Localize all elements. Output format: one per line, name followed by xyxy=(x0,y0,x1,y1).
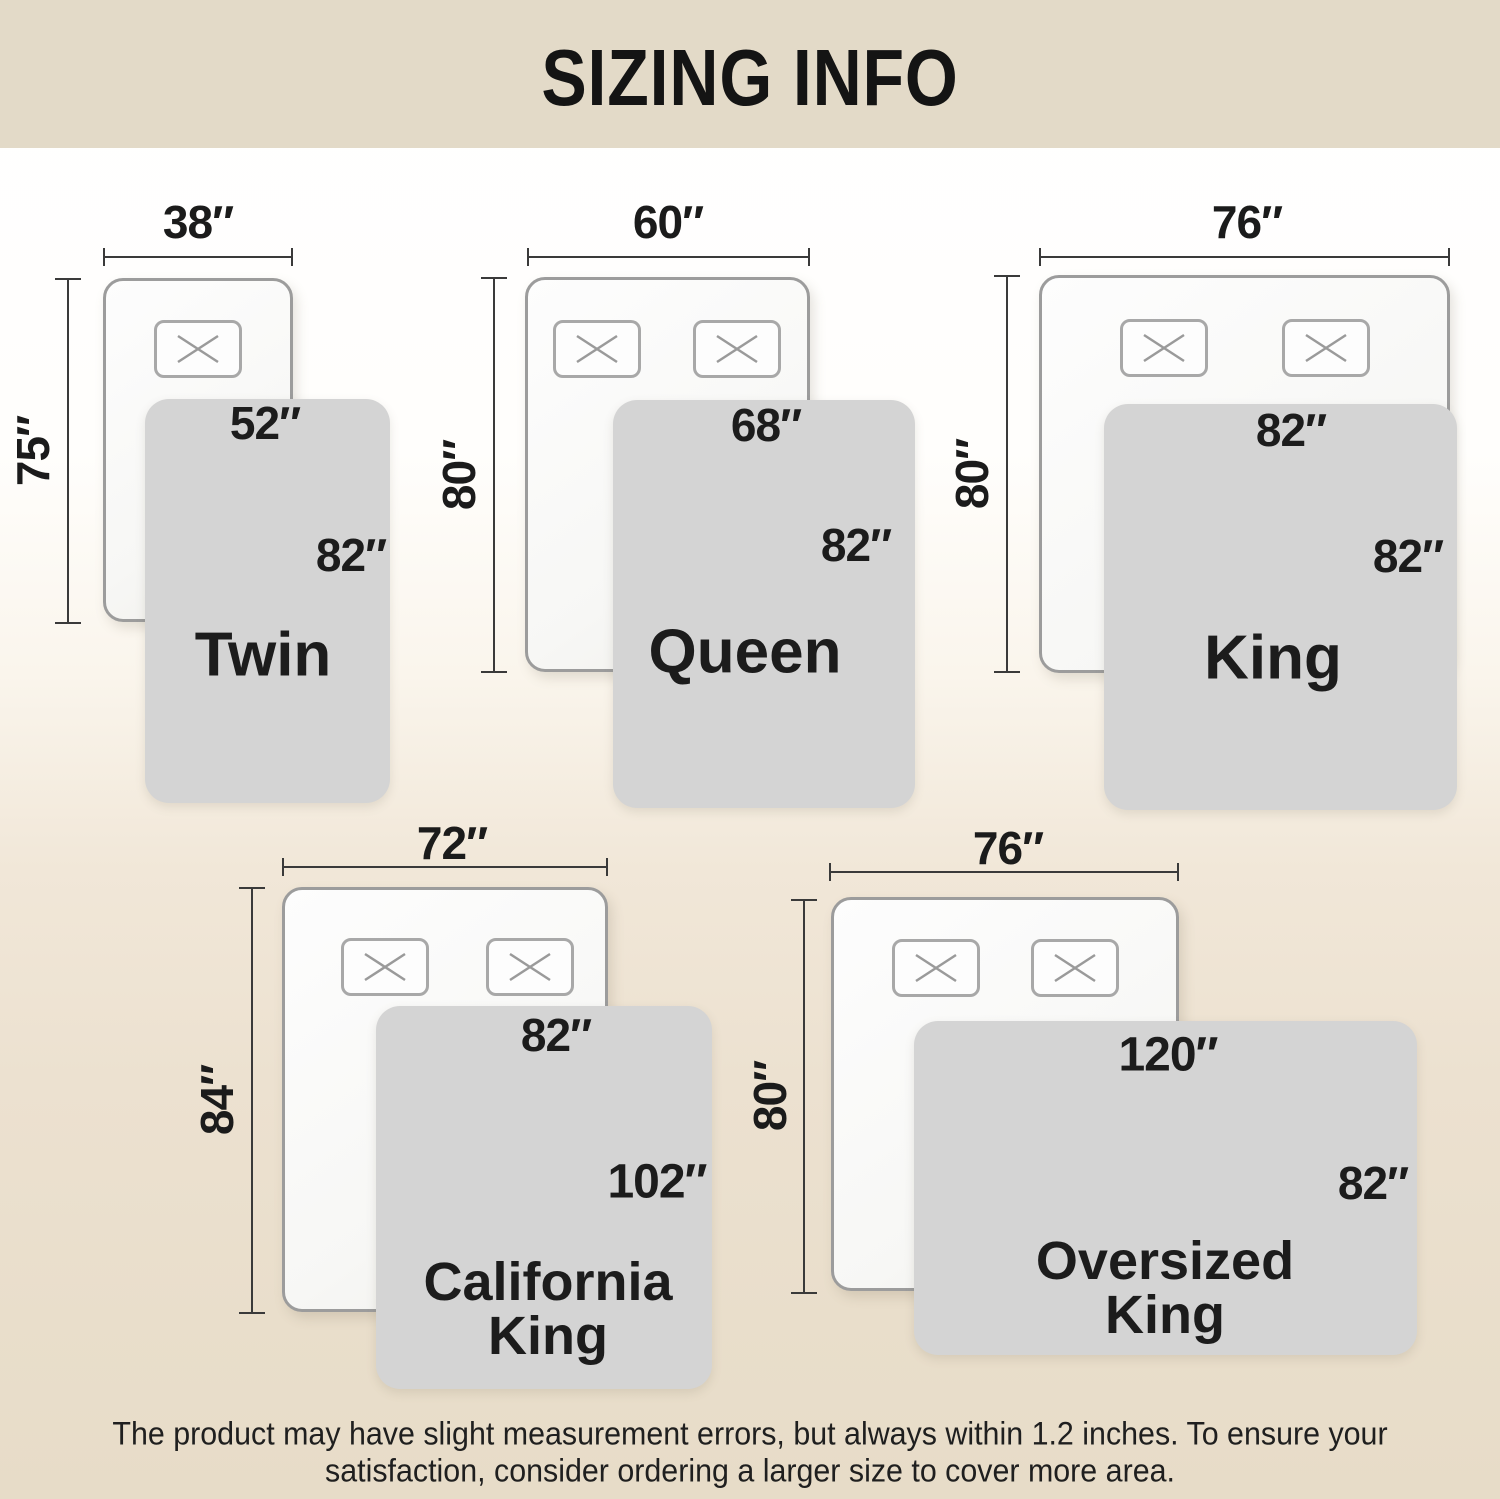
pillow xyxy=(341,938,429,996)
blanket-overlay xyxy=(145,399,390,803)
width-dimension-label: 60″ xyxy=(633,195,703,249)
sizing-infographic: SIZING INFO 38″ 75″ 52″ 82″ Twin 60″ 80″… xyxy=(0,0,1500,1499)
length-dimension-line xyxy=(67,278,69,624)
size-name-label: California King xyxy=(423,1255,672,1363)
pillow xyxy=(1282,319,1370,377)
pillow xyxy=(1120,319,1208,377)
width-dimension-label: 38″ xyxy=(163,195,233,249)
pillow-x-icon xyxy=(501,949,559,985)
width-dimension-line xyxy=(1039,256,1450,258)
length-dimension-label: 84″ xyxy=(190,1065,244,1135)
pillow-x-icon xyxy=(907,950,965,986)
size-name-line-2: King xyxy=(423,1309,672,1363)
size-name-label: Oversized King xyxy=(1036,1234,1294,1342)
length-dimension-label: 80″ xyxy=(945,439,999,509)
length-dimension-label: 75″ xyxy=(6,416,60,486)
disclaimer-line-1: The product may have slight measurement … xyxy=(112,1416,1387,1453)
length-dimension-label: 80″ xyxy=(743,1061,797,1131)
width-dimension-line xyxy=(103,256,293,258)
pillow-x-icon xyxy=(1046,950,1104,986)
blanket-width-label: 82″ xyxy=(521,1008,591,1062)
blanket-length-label: 82″ xyxy=(1373,529,1443,583)
blanket-width-label: 68″ xyxy=(731,398,801,452)
pillow-x-icon xyxy=(169,331,227,367)
size-name-line-1: Oversized xyxy=(1036,1234,1294,1288)
blanket-length-label: 82″ xyxy=(316,528,386,582)
width-dimension-label: 72″ xyxy=(417,816,487,870)
blanket-length-label: 102″ xyxy=(607,1155,706,1210)
size-name-label: Queen xyxy=(649,617,842,688)
pillow xyxy=(553,320,641,378)
width-dimension-line xyxy=(527,256,810,258)
pillow xyxy=(693,320,781,378)
blanket-overlay xyxy=(613,400,915,808)
pillow xyxy=(1031,939,1119,997)
size-name-line-2: King xyxy=(1036,1288,1294,1342)
pillow xyxy=(154,320,242,378)
length-dimension-label: 80″ xyxy=(432,440,486,510)
blanket-length-label: 82″ xyxy=(821,518,891,572)
size-name-label: King xyxy=(1204,623,1342,694)
pillow-x-icon xyxy=(568,331,626,367)
width-dimension-label: 76″ xyxy=(973,821,1043,875)
pillow xyxy=(892,939,980,997)
pillow-x-icon xyxy=(708,331,766,367)
blanket-width-label: 120″ xyxy=(1118,1028,1217,1083)
blanket-overlay xyxy=(1104,404,1457,810)
length-dimension-line xyxy=(1006,275,1008,673)
pillow xyxy=(486,938,574,996)
length-dimension-line xyxy=(493,277,495,673)
pillow-x-icon xyxy=(1297,330,1355,366)
length-dimension-line xyxy=(251,887,253,1314)
pillow-x-icon xyxy=(1135,330,1193,366)
blanket-width-label: 52″ xyxy=(230,396,300,450)
size-name-label: Twin xyxy=(195,620,332,691)
disclaimer-line-2: satisfaction, consider ordering a larger… xyxy=(325,1453,1175,1490)
pillow-x-icon xyxy=(356,949,414,985)
length-dimension-line xyxy=(803,899,805,1294)
blanket-width-label: 82″ xyxy=(1256,403,1326,457)
blanket-length-label: 82″ xyxy=(1338,1156,1408,1210)
size-name-line-1: California xyxy=(423,1255,672,1309)
width-dimension-label: 76″ xyxy=(1212,195,1282,249)
page-title: SIZING INFO xyxy=(541,32,958,124)
